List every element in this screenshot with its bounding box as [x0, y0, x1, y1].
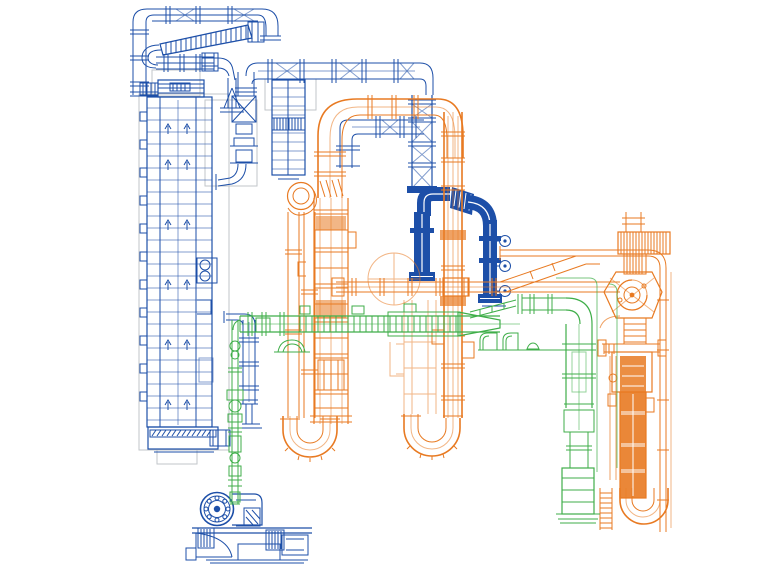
- orange-light-column: [390, 300, 436, 414]
- narrow-grid-tower: [272, 80, 305, 179]
- green-conveyor-horizontal: [233, 300, 520, 336]
- lattice-column: [407, 95, 437, 193]
- green-right-elbow-column: [518, 294, 600, 523]
- orange-transfer-duct: [332, 256, 620, 296]
- piping-drawing: [0, 0, 768, 572]
- tower-side-attachments: [197, 258, 217, 382]
- orange-fan-volute: [285, 183, 318, 419]
- screw-conveyor-top: [142, 22, 264, 68]
- fittings-column: [216, 63, 258, 190]
- orange-u-bend-center: [401, 414, 463, 460]
- orange-cyclone-tower: [598, 212, 670, 530]
- orange-main-riser: [432, 112, 474, 418]
- orange-process-column: [298, 179, 356, 424]
- upper-duct-run: [258, 59, 433, 95]
- tower-footer: [148, 427, 230, 452]
- mill-blower-machine: [186, 493, 312, 564]
- cad-drawing-canvas: [0, 0, 768, 572]
